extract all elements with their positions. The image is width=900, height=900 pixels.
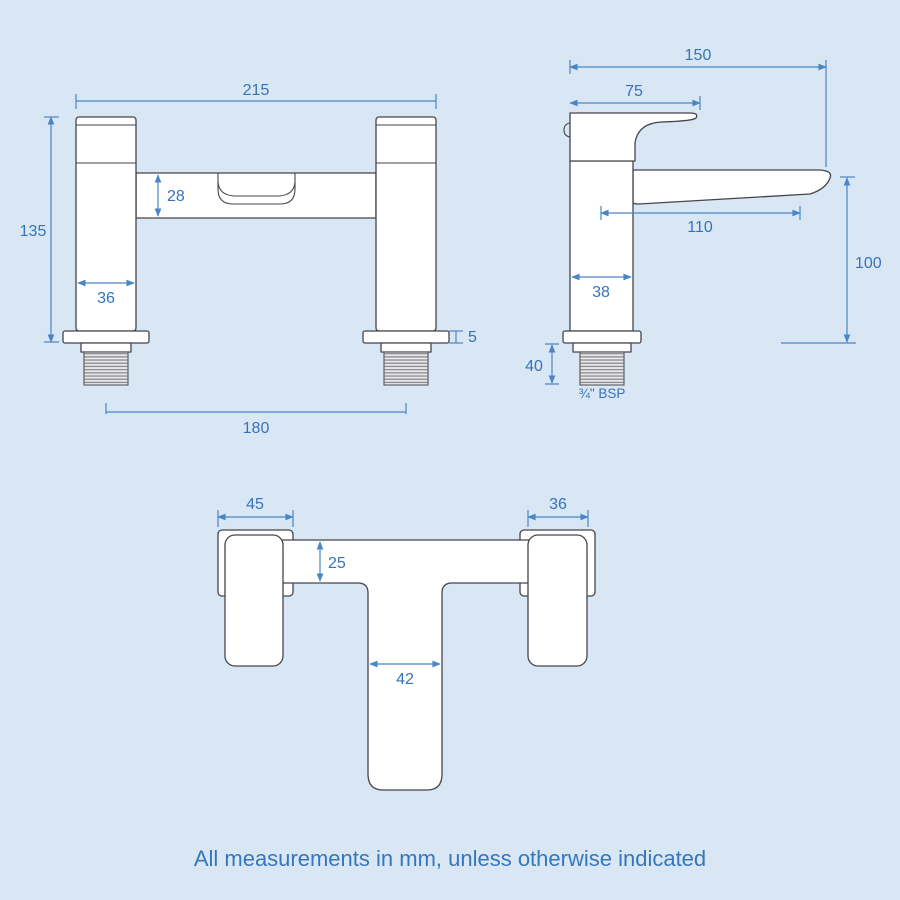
front-right-neck xyxy=(381,343,431,352)
dim-label-inlet-centres: 180 xyxy=(243,420,270,437)
dim-label-handle-length: 75 xyxy=(625,83,643,100)
side-inlet-thread xyxy=(580,352,624,385)
dim-label-spout-height: 100 xyxy=(855,255,882,272)
thread-spec-label: ¾" BSP xyxy=(579,386,626,401)
dim-label-spout-width: 42 xyxy=(396,671,414,688)
tap-dimension-diagram: 215 135 28 36 5 18 xyxy=(0,0,900,900)
dim-label-base-plate-thickness: 5 xyxy=(468,329,477,346)
front-left-base-plate xyxy=(63,331,149,343)
side-neck xyxy=(573,343,631,352)
dim-label-thread-length: 40 xyxy=(525,358,543,375)
front-right-base-plate xyxy=(363,331,449,343)
dim-label-handle-width: 36 xyxy=(549,496,567,513)
side-body xyxy=(570,161,633,331)
dim-label-overall-depth: 150 xyxy=(685,47,712,64)
top-right-handle xyxy=(528,535,587,666)
dim-label-body-width: 45 xyxy=(246,496,264,513)
measurements-note: All measurements in mm, unless otherwise… xyxy=(194,846,706,871)
dimension-diagram-page: 215 135 28 36 5 18 xyxy=(0,0,900,900)
dim-label-crossbar-height: 28 xyxy=(167,188,185,205)
dim-label-body-depth: 38 xyxy=(592,284,610,301)
dim-label-pillar-width: 36 xyxy=(97,290,115,307)
dim-label-overall-width: 215 xyxy=(243,82,270,99)
front-left-neck xyxy=(81,343,131,352)
dim-label-spout-reach: 110 xyxy=(687,219,713,236)
top-left-handle xyxy=(225,535,283,666)
front-left-inlet-thread xyxy=(84,352,128,385)
front-right-pillar xyxy=(376,117,436,331)
front-right-inlet-thread xyxy=(384,352,428,385)
dim-label-crossbar-depth: 25 xyxy=(328,555,346,572)
side-base-plate xyxy=(563,331,641,343)
dim-label-overall-height: 135 xyxy=(20,223,47,240)
